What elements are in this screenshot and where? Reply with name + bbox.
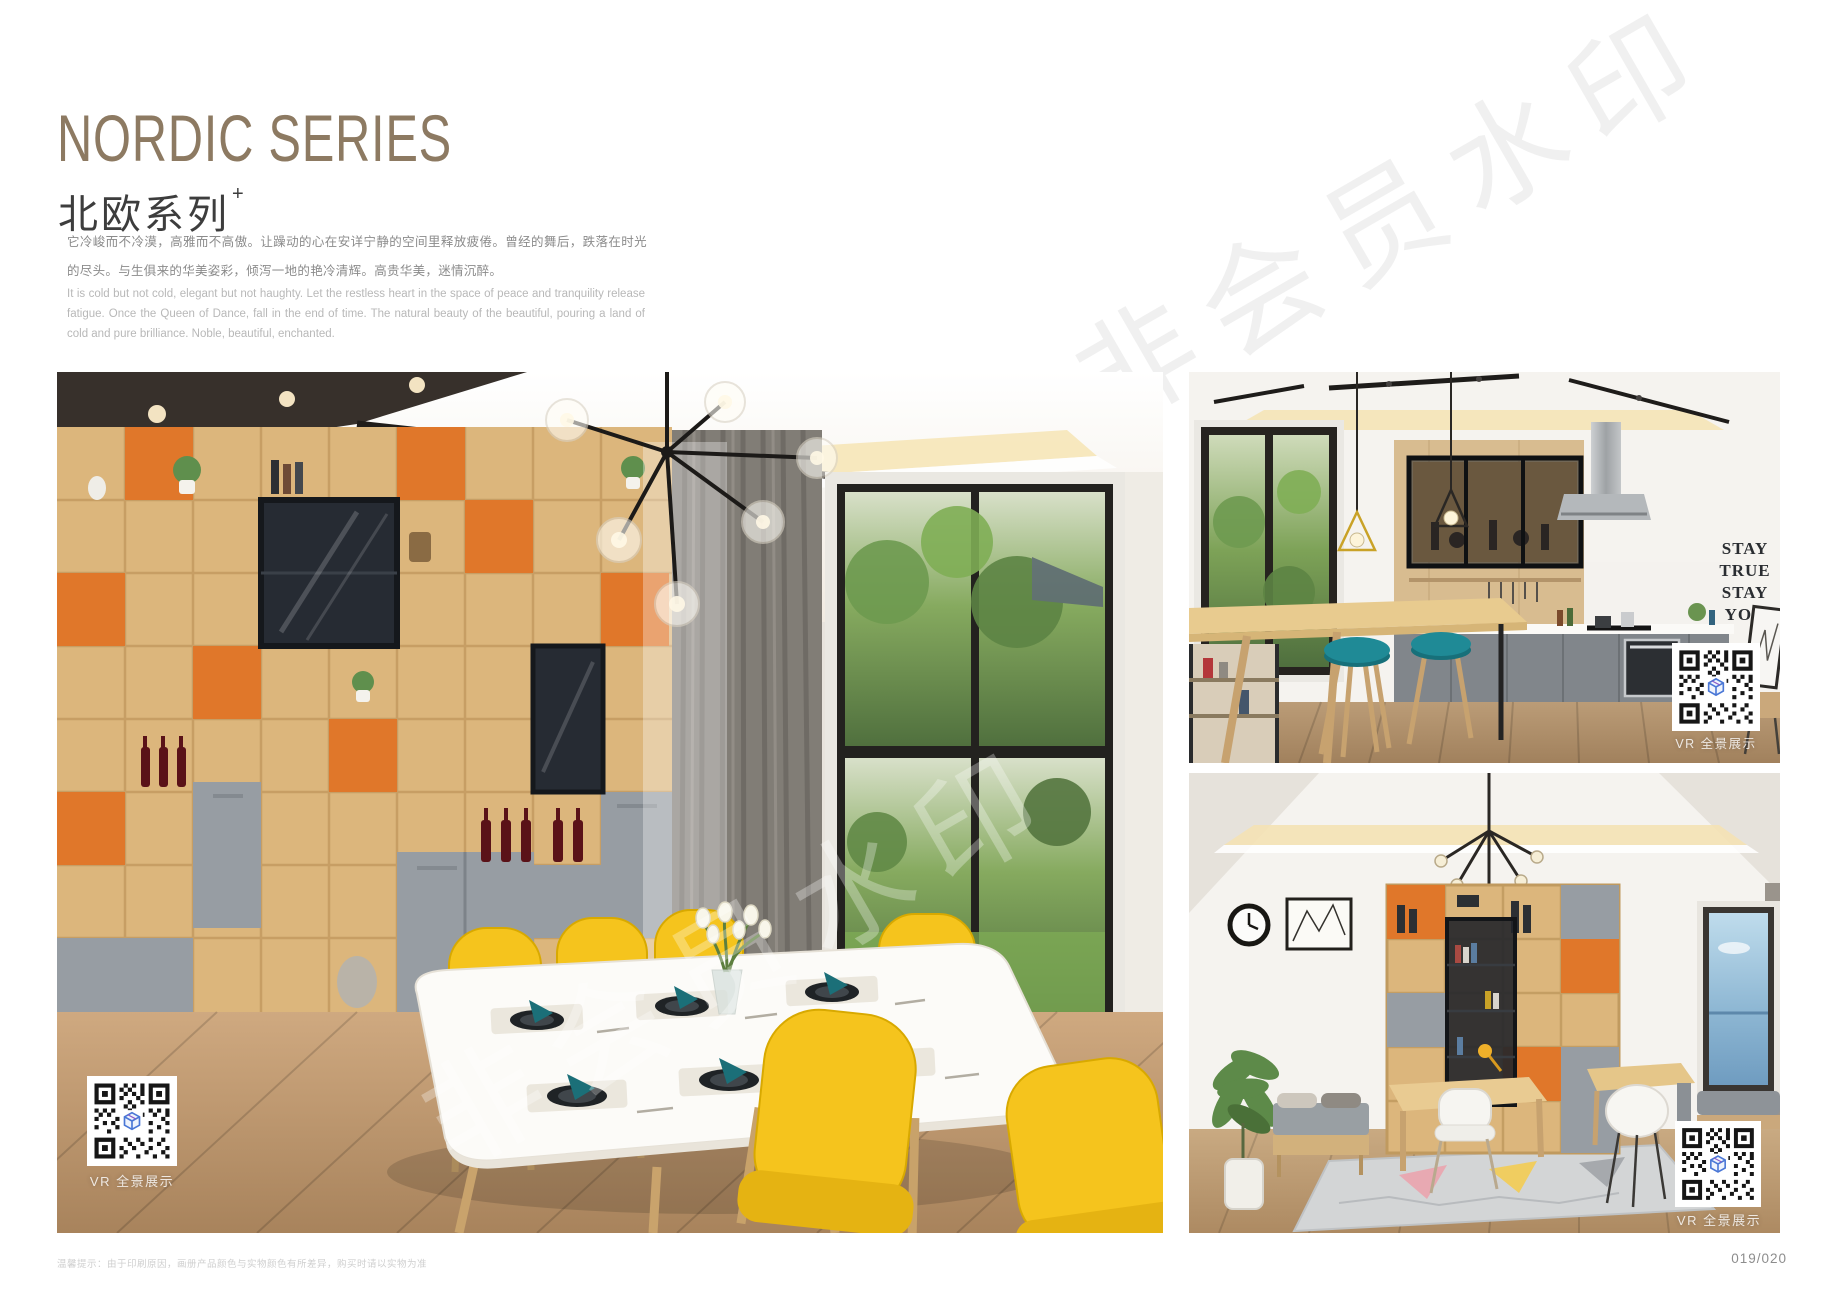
vr-panorama-label: VR 全景展示 <box>82 1171 182 1190</box>
wall-art-text: STAY <box>1722 583 1769 602</box>
series-title-en: NORDIC SERIES <box>57 100 452 176</box>
wall-art-text: TRUE <box>1719 561 1770 580</box>
dining-room-illustration <box>57 372 1163 1233</box>
series-title-plus: + <box>232 183 247 205</box>
description-chinese: 它冷峻而不冷漠，高雅而不高傲。让躁动的心在安详宁静的空间里释放疲倦。曾经的舞后，… <box>67 228 647 286</box>
vr-qr-code <box>87 1076 177 1166</box>
window <box>1194 420 1344 682</box>
vr-qr-code <box>1675 1121 1761 1207</box>
glass-display-cabinet <box>1447 919 1515 1105</box>
line-art-frame <box>1287 899 1351 949</box>
window-seat-cushion <box>1697 1091 1780 1115</box>
study-shelving-unit <box>1387 885 1619 1153</box>
footer-disclaimer: 温馨提示：由于印刷原因，画册产品颜色与实物颜色有所差异，购买时请以实物为准 <box>57 1256 427 1270</box>
dining-room-photo: VR 全景展示 <box>57 372 1163 1233</box>
description-english: It is cold but not cold, elegant but not… <box>67 284 645 344</box>
vr-panorama-label: VR 全景展示 <box>1666 733 1766 752</box>
study-illustration <box>1189 773 1780 1233</box>
wall-art-text: STAY <box>1722 539 1769 558</box>
wall-clock <box>1230 906 1268 944</box>
window <box>825 472 1163 1028</box>
kitchen-illustration: STAY TRUE STAY YOU <box>1189 372 1780 763</box>
vr-qr-code <box>1672 643 1760 731</box>
kitchen-photo: STAY TRUE STAY YOU <box>1189 372 1780 763</box>
vr-panorama-label: VR 全景展示 <box>1669 1210 1769 1229</box>
page-number: 019/020 <box>1731 1251 1787 1266</box>
window <box>1697 883 1780 1133</box>
study-room-photo: VR 全景展示 <box>1189 773 1780 1233</box>
desk-lamp <box>1478 1044 1492 1058</box>
